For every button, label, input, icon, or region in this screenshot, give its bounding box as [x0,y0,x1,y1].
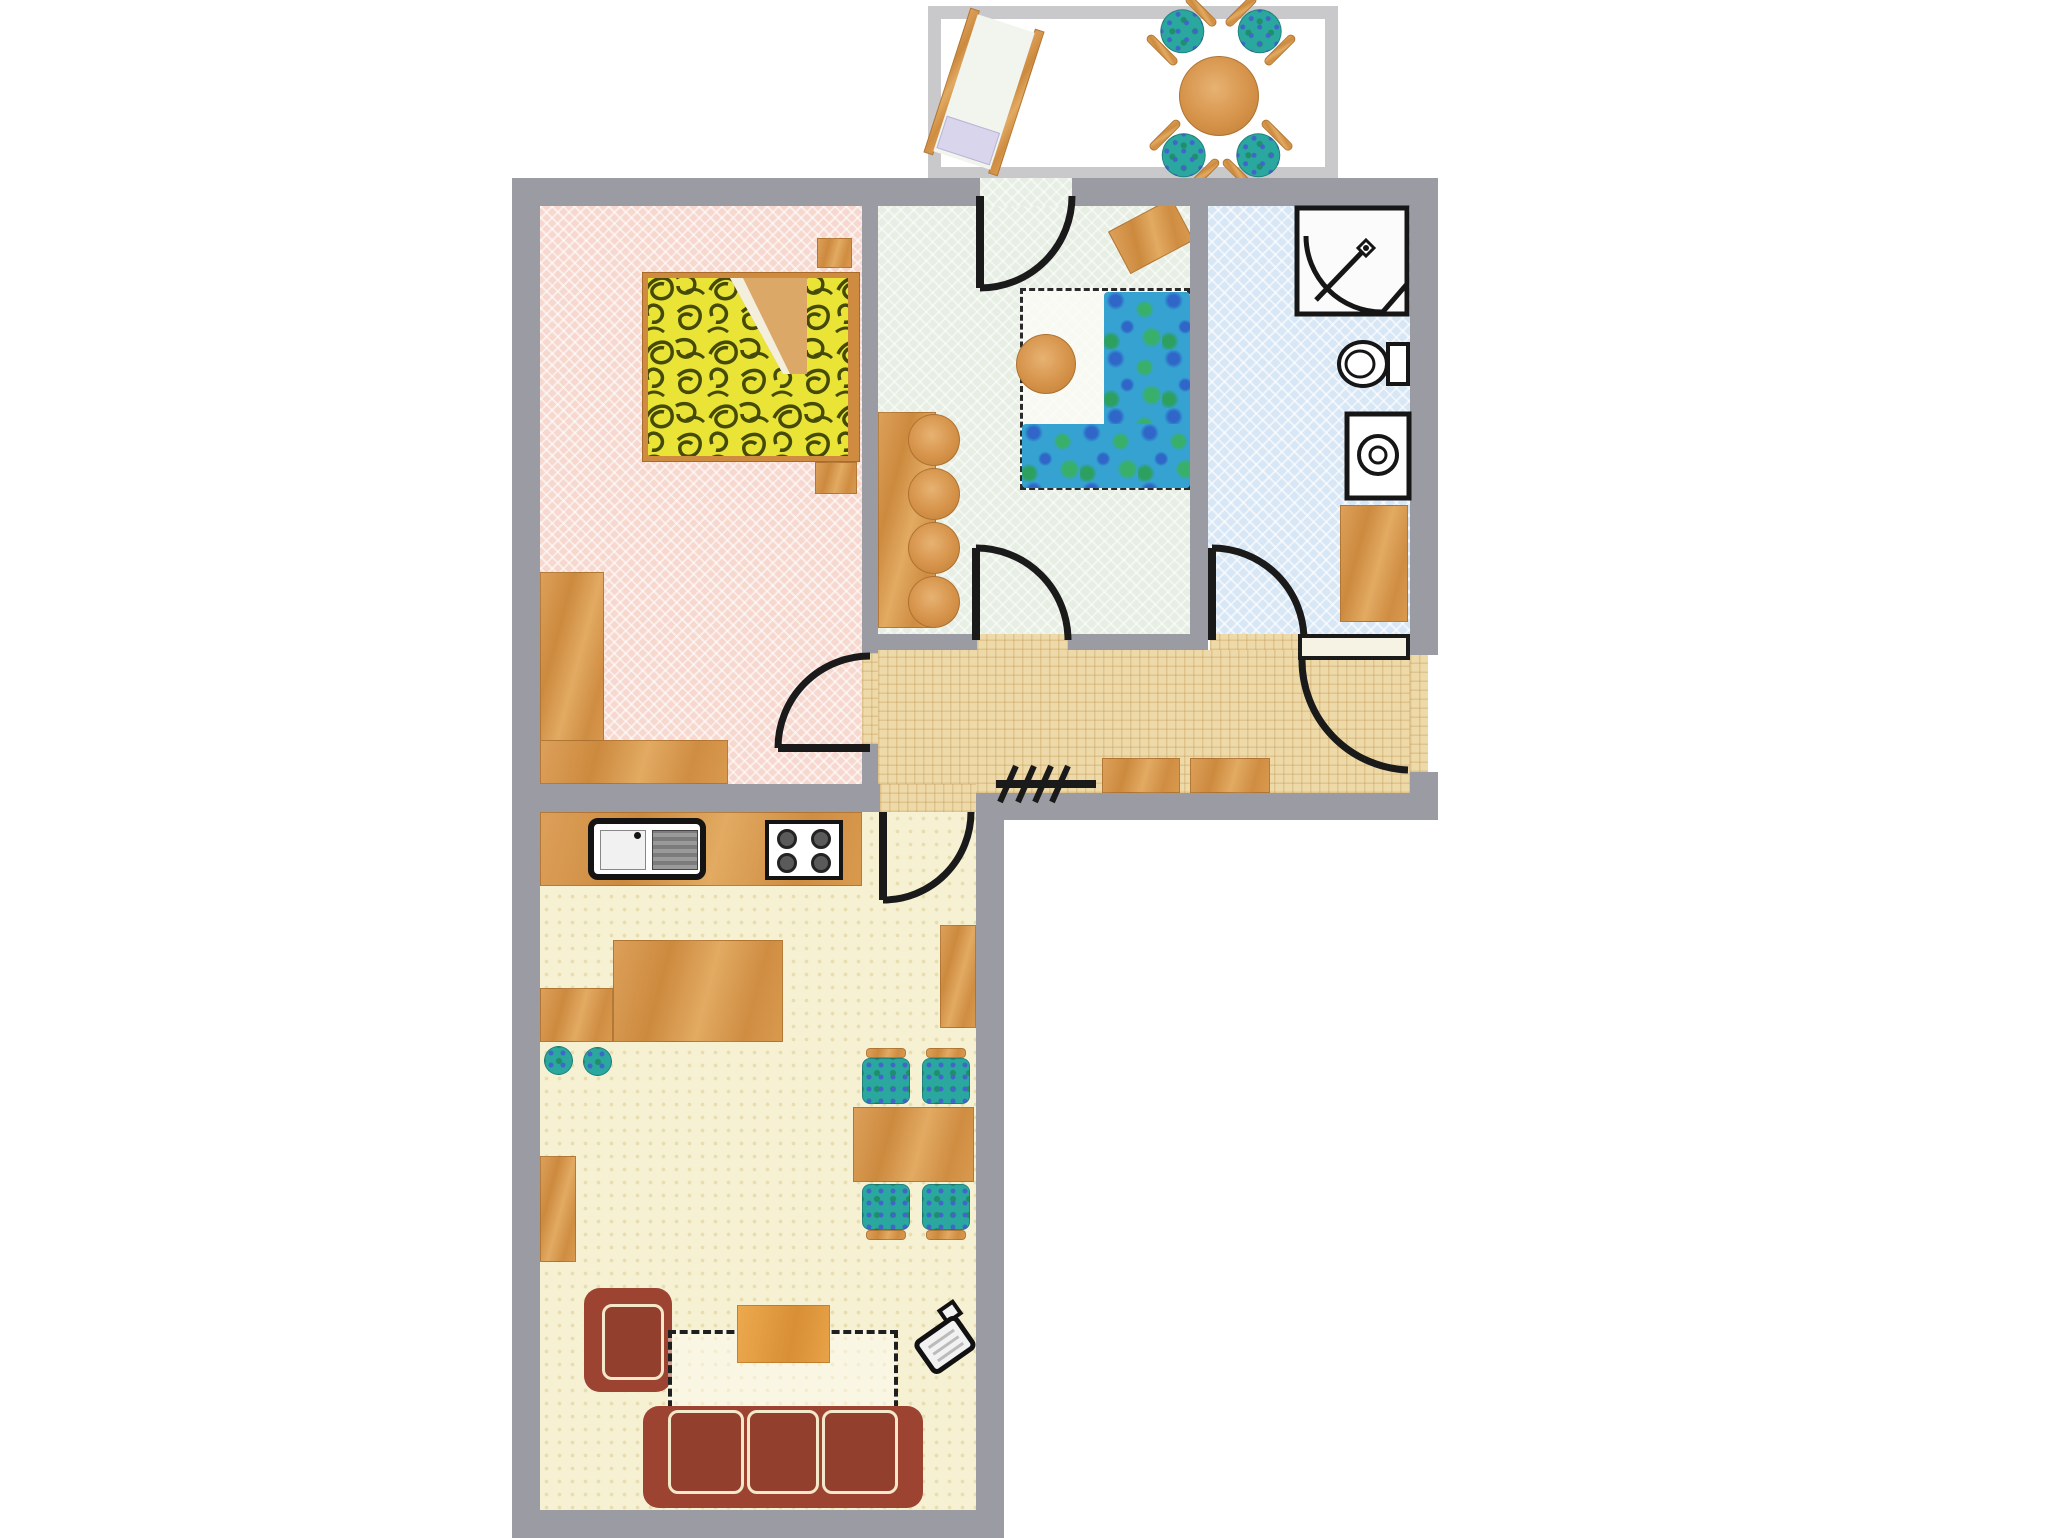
washing-machine-icon [1347,414,1409,498]
entrance-door-leaf [1300,636,1408,658]
floor-plan [0,0,2048,1538]
linework-overlay [0,0,2048,1538]
coat-rack-icon [996,766,1096,802]
balcony-door-arc [980,196,1072,288]
toilet-icon [1339,342,1408,386]
bathroom-door-arc [1212,548,1304,640]
kids-door-arc [976,548,1068,640]
tv-icon [908,1302,981,1374]
bedroom-door-arc [778,656,870,748]
corner-shower-icon [1297,208,1407,314]
entrance-door-arc [1302,660,1408,770]
living-door-arc [883,812,971,900]
